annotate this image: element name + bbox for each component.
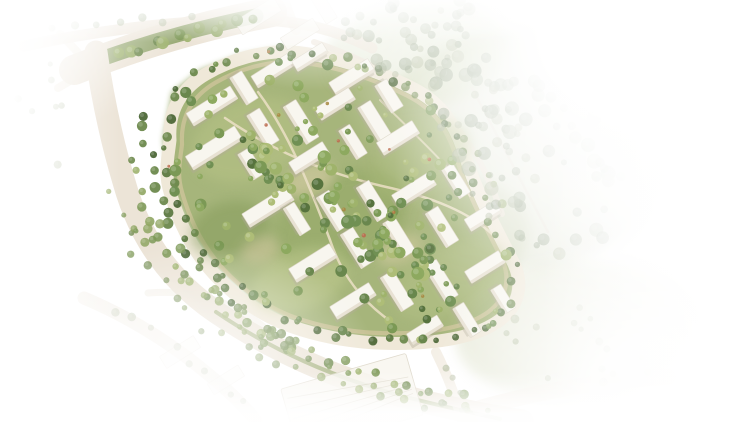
tree-highlight [54,104,57,107]
tree-highlight [555,249,561,255]
tree-highlight [572,321,575,324]
tree-highlight [144,225,148,229]
tree-highlight [426,93,429,96]
tree-highlight [112,309,116,313]
tree-highlight [331,207,334,210]
tree-highlight [439,109,444,114]
tree-highlight [269,199,272,202]
tree-highlight [388,148,389,149]
tree-highlight [179,278,182,281]
tree-highlight [189,14,192,17]
tree-highlight [212,260,216,264]
tree-highlight [410,168,415,173]
tree-highlight [279,146,282,149]
tree-highlight [455,134,458,137]
tree-highlight [504,81,509,86]
tree-highlight [372,55,378,61]
tree-highlight [264,148,267,151]
tree-highlight [486,408,489,411]
tree-highlight [300,194,305,199]
tree-highlight [339,327,343,331]
tree-highlight [256,162,262,168]
tree-highlight [598,233,604,239]
tree-highlight [358,86,361,89]
tree-highlight [407,35,412,40]
tree-highlight [412,262,416,266]
tree-highlight [256,354,260,358]
tree-highlight [202,368,205,371]
tree-highlight [284,174,289,179]
tree-highlight [388,213,391,216]
tree-highlight [242,305,245,308]
tree-highlight [366,251,371,256]
tree-highlight [452,215,455,218]
tree-highlight [219,330,222,333]
tree-highlight [460,70,466,76]
tree-highlight [513,168,517,172]
tree-highlight [382,61,387,66]
tree-highlight [346,167,350,171]
tree-highlight [198,174,201,177]
tree-highlight [226,255,230,259]
tree-highlight [617,173,621,177]
tree-highlight [250,291,255,296]
tree-highlight [49,78,52,81]
tree-highlight [444,282,447,285]
tree-highlight [118,19,121,22]
tree-highlight [426,61,431,66]
tree-highlight [266,76,271,81]
tree-highlight [165,209,169,213]
tree-highlight [380,229,385,234]
tree-highlight [265,124,267,126]
tree-highlight [412,93,415,96]
tree-highlight [362,234,364,236]
tree-highlight [235,48,237,50]
tree-highlight [223,312,226,315]
tree-highlight [212,26,217,31]
tree-highlight [504,127,510,133]
tree-highlight [429,32,433,36]
tree-highlight [597,159,601,163]
tree-highlight [424,316,428,320]
tree-highlight [420,306,423,309]
tree-highlight [151,167,155,171]
tree-highlight [364,31,370,37]
tree-highlight [377,393,381,397]
tree-highlight [278,330,282,334]
tree-highlight [173,87,176,90]
tree-highlight [342,18,346,22]
tree-highlight [486,214,489,217]
tree-highlight [174,201,178,205]
tree-highlight [442,121,445,124]
tree-highlight [593,172,598,177]
tree-highlight [171,166,176,171]
tree-highlight [276,59,280,63]
tree-highlight [248,160,253,165]
tree-highlight [472,92,476,96]
tree-highlight [182,236,185,239]
tree-highlight [175,344,178,347]
tree-highlight [462,403,466,407]
tree-highlight [421,234,424,237]
tree-highlight [367,200,371,204]
tree-highlight [399,13,404,18]
tree-highlight [199,329,202,332]
tree-highlight [243,319,247,323]
tree-highlight [151,183,156,188]
tree-highlight [450,375,453,378]
tree-highlight [235,312,239,316]
tree-highlight [278,183,281,186]
tree-highlight [409,177,412,180]
tree-highlight [309,127,313,131]
tree-highlight [277,177,282,182]
tree-highlight [601,206,604,209]
tree-highlight [379,253,383,257]
tree-highlight [383,113,385,115]
tree-highlight [640,356,642,358]
tree-highlight [429,47,434,52]
tree-highlight [455,189,459,193]
tree-highlight [294,287,298,291]
tree-highlight [569,123,573,127]
tree-highlight [342,357,346,361]
tree-highlight [453,52,459,58]
tree-highlight [343,217,349,223]
tree-highlight [238,325,240,327]
tree-highlight [401,396,405,400]
tree-highlight [138,203,142,207]
tree-highlight [396,248,401,253]
tree-highlight [502,251,507,256]
tree-highlight [209,96,213,100]
tree-highlight [356,369,359,372]
tree-highlight [145,262,149,266]
tree-highlight [333,334,337,338]
tree-highlight [523,154,527,158]
tree-highlight [546,376,549,379]
tree-highlight [507,103,513,109]
tree-highlight [240,137,243,140]
tree-highlight [341,35,344,38]
tree-highlight [163,250,167,254]
tree-highlight [72,22,76,26]
tree-highlight [263,299,267,303]
tree-highlight [215,242,220,247]
tree-highlight [464,4,470,10]
tree-highlight [187,97,192,102]
tree-highlight [539,235,544,240]
tree-highlight [396,389,400,393]
tree-highlight [327,365,329,367]
tree-highlight [398,272,401,275]
tree-highlight [436,160,441,165]
tree-highlight [259,335,262,338]
tree-highlight [258,330,262,334]
tree-highlight [209,288,212,291]
tree-highlight [342,208,344,210]
tree-highlight [363,217,367,221]
tree-highlight [589,156,596,163]
tree-highlight [487,324,490,327]
tree-highlight [404,176,407,179]
tree-highlight [314,327,318,331]
tree-highlight [242,330,244,332]
tree-highlight [327,165,332,170]
tree-highlight [309,347,312,350]
tree-highlight [346,371,349,374]
tree-highlight [335,183,339,187]
tree-highlight [235,305,239,309]
tree-highlight [141,239,145,243]
tree-highlight [388,248,393,253]
tree-highlight [293,136,298,141]
tree-highlight [422,25,427,30]
tree-highlight [472,75,478,81]
tree-highlight [250,16,254,20]
tree-highlight [216,298,220,302]
masterplan-render [0,0,750,422]
tree-highlight [371,19,374,22]
tree-highlight [127,47,133,53]
tree-highlight [531,175,535,179]
tree-highlight [512,316,516,320]
tree-highlight [156,220,160,224]
tree-highlight [350,173,354,177]
tree-highlight [443,366,446,369]
tree-highlight [321,227,324,230]
tree-highlight [221,91,224,94]
tree-highlight [610,371,613,374]
tree-highlight [515,262,517,264]
tree-highlight [361,295,366,300]
tree-highlight [577,305,580,308]
tree-highlight [429,81,434,86]
tree-highlight [310,51,313,54]
tree-highlight [341,382,343,384]
tree-highlight [480,123,484,127]
tree-highlight [504,143,507,146]
tree-highlight [579,327,581,329]
tree-highlight [443,402,445,404]
tree-highlight [229,300,232,303]
tree-highlight [201,250,204,253]
tree-highlight [400,59,406,65]
tree-highlight [406,81,408,83]
tree-highlight [220,274,223,277]
tree-highlight [600,379,604,383]
tree-highlight [645,369,648,372]
tree-highlight [122,213,124,215]
tree-highlight [247,131,252,136]
tree-highlight [295,127,297,129]
tree-highlight [186,361,189,364]
tree-highlight [381,292,384,295]
tree-highlight [171,94,175,98]
tree-highlight [463,163,470,170]
tree-highlight [466,116,472,122]
building-block [311,0,338,24]
tree-highlight [591,225,597,231]
tree-highlight [344,53,348,57]
tree-highlight [325,359,329,363]
tree-highlight [128,252,131,255]
tree-highlight [140,141,143,144]
tree-highlight [261,340,265,344]
tree-highlight [337,267,342,272]
tree-highlight [391,381,395,385]
tree-highlight [162,146,164,148]
tree-highlight [504,331,507,334]
tree-highlight [393,72,396,75]
tree-highlight [482,54,487,59]
tree-highlight [460,408,463,411]
tree-highlight [452,22,457,27]
tree-highlight [355,64,358,67]
tree-highlight [420,336,424,340]
tree-highlight [454,150,461,157]
tree-highlight [171,188,176,193]
tree-highlight [262,292,265,295]
tree-highlight [354,239,358,243]
tree-highlight [185,35,189,39]
tree-highlight [323,60,328,65]
tree-highlight [48,62,50,64]
tree-highlight [534,324,537,327]
tree-highlight [306,356,309,359]
tree-highlight [427,106,432,111]
tree-highlight [293,365,296,368]
tree-highlight [282,317,286,321]
tree-highlight [391,5,394,8]
tree-highlight [397,199,402,204]
tree-highlight [453,335,456,338]
tree-highlight [421,295,423,297]
tree-highlight [447,40,452,45]
tree-highlight [483,325,486,328]
tree-highlight [223,223,227,227]
tree-highlight [294,81,299,86]
tree-highlight [205,111,209,115]
tree-highlight [164,278,167,281]
tree-highlight [346,129,349,132]
tree-highlight [347,28,352,33]
tree-highlight [574,209,578,213]
tree-highlight [246,233,250,237]
tree-highlight [164,133,168,137]
tree-highlight [288,185,292,189]
tree-highlight [470,191,473,194]
tree-highlight [49,26,52,29]
tree-highlight [434,338,437,341]
tree-highlight [529,76,535,82]
tree-highlight [367,136,371,140]
tree-highlight [422,406,425,409]
tree-highlight [140,113,144,117]
tree-highlight [282,245,287,250]
tree-highlight [149,325,152,328]
tree-highlight [417,283,420,286]
tree-highlight [176,30,181,35]
tree-highlight [297,317,300,320]
tree-highlight [438,224,442,228]
tree-highlight [421,257,425,261]
tree-highlight [374,240,379,245]
tree-highlight [544,146,550,152]
tree-highlight [219,21,223,25]
tree-highlight [277,114,279,116]
tree-highlight [454,284,457,287]
tree-highlight [233,16,238,21]
tree-highlight [94,22,97,25]
tree-highlight [567,84,571,88]
tree-highlight [561,105,565,109]
tree-highlight [438,307,441,310]
tree-highlight [59,103,62,106]
tree-highlight [337,140,338,141]
tree-highlight [321,219,326,224]
tree-highlight [483,195,486,198]
tree-highlight [319,152,325,158]
tree-highlight [470,179,474,183]
tree-highlight [207,162,210,165]
tree-highlight [463,32,467,36]
tree-highlight [458,391,460,393]
tree-highlight [353,31,358,36]
tree-highlight [115,49,120,54]
tree-highlight [318,374,322,378]
tree-highlight [288,52,292,56]
tree-highlight [129,231,132,234]
tree-highlight [210,67,213,70]
tree-highlight [202,293,205,296]
tree-highlight [277,44,281,48]
tree-highlight [240,284,243,287]
tree-highlight [601,165,605,169]
tree-highlight [177,245,181,249]
tree-highlight [223,59,227,63]
tree-highlight [427,133,429,135]
tree-highlight [418,46,421,49]
tree-highlight [427,245,431,249]
tree-highlight [269,175,272,178]
tree-highlight [599,366,602,369]
tree-highlight [249,176,251,178]
tree-highlight [267,50,268,51]
tree-highlight [228,392,231,395]
tree-highlight [214,62,216,64]
tree-highlight [273,361,277,365]
tree-highlight [487,203,491,207]
tree-highlight [129,158,132,161]
tree-highlight [377,38,380,41]
tree-highlight [160,197,164,201]
tree-highlight [214,275,218,279]
tree-highlight [197,204,201,208]
tree-highlight [604,346,607,349]
tree-highlight [341,146,346,151]
tree-highlight [215,130,220,135]
tree-highlight [246,344,249,347]
tree-highlight [513,339,516,342]
tree-highlight [416,222,420,226]
tree-highlight [403,382,407,386]
tree-highlight [446,390,449,393]
tree-highlight [264,326,268,330]
tree-highlight [286,337,290,341]
